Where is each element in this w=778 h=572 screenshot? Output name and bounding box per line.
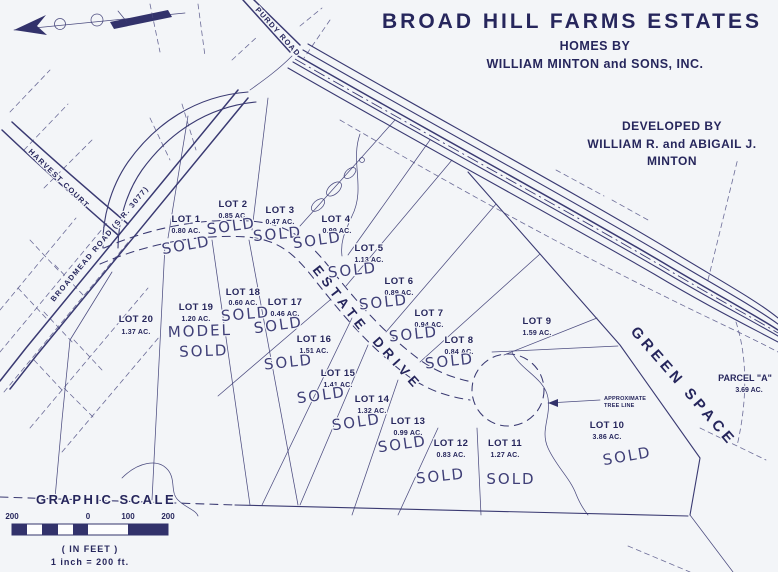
lot-1-name: LOT 1 [172,214,201,225]
lot-7: LOT 7 0.94 AC. SOLD [388,308,443,346]
lot-5-status: SOLD [327,259,378,282]
scale-bar [12,524,168,535]
lot-4: LOT 4 0.99 AC. SOLD [292,214,352,252]
graphic-scale-heading: GRAPHIC SCALE [36,492,176,507]
lot-16-name: LOT 16 [297,334,332,345]
lot-9-acreage: 1.59 AC. [523,330,552,337]
lot-15-status: SOLD [296,383,347,408]
developed-by-label: DEVELOPED BY [622,119,722,133]
lot-11-status: SOLD [486,470,535,488]
lot-14-name: LOT 14 [355,394,390,405]
map-title: BROAD HILL FARMS ESTATES [382,10,762,33]
lot-2-status: SOLD [206,214,257,239]
developer-surname: MINTON [647,154,697,168]
lot-7-status: SOLD [388,323,439,346]
lot-12-name: LOT 12 [434,438,469,449]
lot-2: LOT 2 0.85 AC. SOLD [206,199,257,238]
lot-13-status: SOLD [377,432,428,457]
lot-18-name: LOT 18 [226,287,261,298]
lot-5: LOT 5 1.13 AC. SOLD [327,243,384,282]
scale-tick-100: 100 [121,512,135,521]
lot-15: LOT 15 1.41 AC. SOLD [296,368,356,407]
lot-13-name: LOT 13 [391,416,426,427]
tree-line [512,352,588,515]
lot-9: LOT 9 1.59 AC. [523,316,552,337]
green-space-label: GREEN SPACE [627,323,740,449]
lot-11-name: LOT 11 [488,438,522,449]
title-block: BROAD HILL FARMS ESTATES HOMES BY WILLIA… [382,10,762,71]
lot-20: LOT 20 1.37 AC. [119,314,154,336]
lot-18: LOT 18 0.60 AC. SOLD [220,287,271,325]
purdy-road-label: PURDY ROAD [254,5,303,58]
developer-block: DEVELOPED BY WILLIAM R. and ABIGAIL J. M… [587,119,756,168]
lot-20-acreage: 1.37 AC. [122,329,151,336]
lot-10-name: LOT 10 [590,420,625,431]
lot-17-name: LOT 17 [268,297,303,308]
tree-line-note: APPROXIMATE TREE LINE [548,396,646,409]
lot-19-name: LOT 19 [179,302,214,313]
scale-tick-200-left: 200 [5,512,19,521]
lot-11-acreage: 1.27 AC. [491,452,520,459]
tree-note-line1: APPROXIMATE [604,396,646,402]
lot-14-status: SOLD [331,410,382,435]
lot-5-name: LOT 5 [355,243,384,254]
scale-tick-200-right: 200 [161,512,175,521]
lot-7-name: LOT 7 [415,308,444,319]
homes-by-label: HOMES BY [560,39,631,53]
lot-15-name: LOT 15 [321,368,356,379]
lot-9-name: LOT 9 [523,316,552,327]
plat-map: APPROXIMATE TREE LINE BROAD HILL FARMS E… [0,0,778,572]
lot-13: LOT 13 0.99 AC. SOLD [377,416,428,456]
broadmead-road-label: BROADMEAD ROAD (S.R. 3077) [49,184,151,303]
graphic-scale: GRAPHIC SCALE 200 0 100 200 ( IN FEET ) … [5,492,176,567]
lot-3-name: LOT 3 [266,205,295,216]
lot-19-status: SOLD [179,341,229,361]
lot-6: LOT 6 0.89 AC. SOLD [358,276,413,314]
stream-edge [122,463,198,516]
lot-8-status: SOLD [424,350,475,373]
lot-10-acreage: 3.86 AC. [593,434,622,441]
lot-4-name: LOT 4 [322,214,351,225]
lot-12-acreage: 0.83 AC. [437,452,466,459]
lot-6-status: SOLD [358,291,409,314]
homes-by-name: WILLIAM MINTON and SONS, INC. [486,57,703,71]
lot-16-status: SOLD [263,351,314,374]
parcel-a-acreage: 3.69 AC. [735,387,762,394]
north-arrow-icon [14,10,185,35]
lot-19-note: MODEL [167,321,232,341]
adjacent-lot-lines [0,4,766,572]
harvest-court-label: HARVEST COURT [27,147,92,210]
scale-ratio: 1 inch = 200 ft. [51,557,129,567]
lot-12-status: SOLD [415,465,466,488]
scale-units: ( IN FEET ) [62,544,119,554]
lot-10: LOT 10 3.86 AC. SOLD [590,420,653,469]
lot-2-name: LOT 2 [219,199,248,210]
lot-20-name: LOT 20 [119,314,154,325]
lot-11: LOT 11 1.27 AC. SOLD [486,438,535,488]
tree-note-line2: TREE LINE [604,403,635,409]
developer-names: WILLIAM R. and ABIGAIL J. [587,137,756,151]
parcel-a-label: PARCEL "A" [718,373,772,383]
lot-8-name: LOT 8 [445,335,474,346]
lot-10-status: SOLD [601,443,653,469]
scale-tick-0: 0 [86,512,91,521]
plat-map-page: APPROXIMATE TREE LINE BROAD HILL FARMS E… [0,0,778,572]
lot-6-name: LOT 6 [385,276,414,287]
